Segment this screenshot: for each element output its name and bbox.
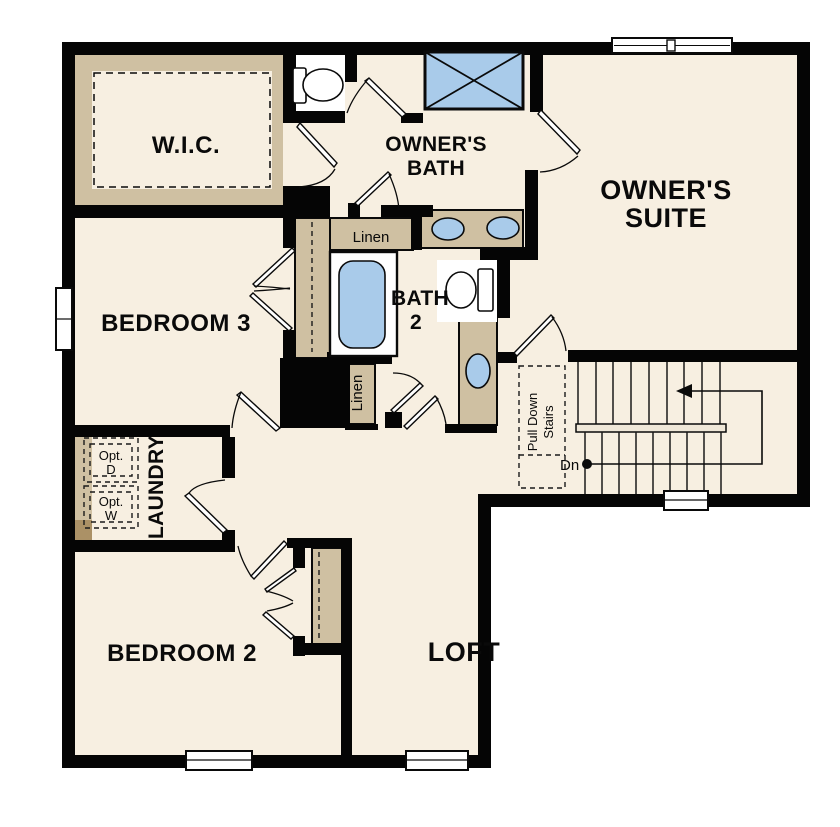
floorplan-drawing: W.I.C. OWNER'S BATH OWNER'S SUITE BEDROO…	[0, 0, 840, 822]
wic-closet	[75, 55, 283, 205]
wall-segment	[411, 206, 422, 250]
tub-basin	[339, 261, 385, 348]
bath2-label-line2: 2	[410, 311, 422, 334]
wall-segment	[283, 111, 345, 123]
wall-segment	[280, 358, 350, 428]
opt-w-label-line1: Opt.	[99, 494, 124, 509]
window-bedroom3	[56, 288, 72, 350]
stair-start-dot	[582, 459, 592, 469]
wall-segment	[530, 42, 543, 112]
wall-segment	[283, 212, 296, 248]
wall-segment	[568, 350, 797, 362]
wall-segment	[287, 538, 350, 548]
wic-label: W.I.C.	[152, 132, 220, 159]
wall-segment	[345, 424, 378, 430]
wall-segment	[341, 655, 352, 755]
wall-segment	[797, 42, 810, 507]
wall-segment	[283, 330, 296, 358]
bedroom2-label: BEDROOM 2	[107, 640, 257, 667]
bath2-label-line1: BATH	[391, 287, 449, 310]
wall-segment	[62, 42, 75, 768]
laundry-label: LAUNDRY	[145, 435, 168, 539]
bedroom3-label: BEDROOM 3	[101, 310, 251, 337]
opt-d-label-line2: D	[106, 462, 115, 477]
window-owners-suite	[612, 38, 732, 53]
owners-suite-label-line2: SUITE	[625, 203, 707, 233]
owners-bath-label-line2: BATH	[407, 157, 465, 180]
sink-oval	[466, 354, 490, 388]
shower-fixture	[425, 52, 523, 109]
window-loft	[406, 751, 468, 770]
wic-floor	[92, 71, 272, 189]
bedroom2-closet	[312, 548, 342, 644]
opt-d-label-line1: Opt.	[99, 448, 124, 463]
toilet-fixture-owners	[293, 68, 343, 103]
owners-bath-label-line1: OWNER'S	[385, 133, 487, 156]
pull-down-label-line1: Pull Down	[525, 393, 540, 452]
wall-segment	[293, 548, 305, 568]
toilet-bowl	[446, 272, 476, 308]
toilet-tank	[478, 269, 493, 311]
wall-segment	[445, 424, 497, 433]
pull-down-label-line2: Stairs	[541, 405, 556, 439]
sink-oval	[432, 218, 464, 240]
wall-segment	[62, 540, 235, 552]
window-bedroom2	[186, 751, 252, 770]
wall-segment	[381, 205, 433, 217]
window-mullion	[667, 40, 675, 51]
floorplan-page: W.I.C. OWNER'S BATH OWNER'S SUITE BEDROO…	[0, 0, 840, 822]
wall-segment	[341, 538, 352, 658]
window-stairwell	[664, 491, 708, 510]
opt-w-label-line2: W	[105, 508, 118, 523]
down-label: Dn	[560, 457, 579, 474]
wall-segment	[385, 412, 402, 428]
wall-segment	[478, 494, 491, 768]
sink-oval	[487, 217, 519, 239]
bathtub-fixture	[330, 252, 397, 356]
toilet-fixture-bath2	[446, 269, 493, 311]
owners-suite-label-line1: OWNER'S	[600, 175, 731, 205]
wall-segment	[478, 494, 810, 507]
wall-segment	[222, 437, 235, 478]
linen-lower-label: Linen	[349, 375, 366, 412]
wall-segment	[525, 170, 538, 260]
loft-label: LOFT	[428, 637, 500, 667]
toilet-bowl	[303, 69, 343, 101]
linen-upper-label: Linen	[353, 229, 390, 246]
wall-segment	[345, 42, 357, 82]
wall-segment	[497, 258, 510, 318]
stair-landing	[576, 424, 726, 432]
